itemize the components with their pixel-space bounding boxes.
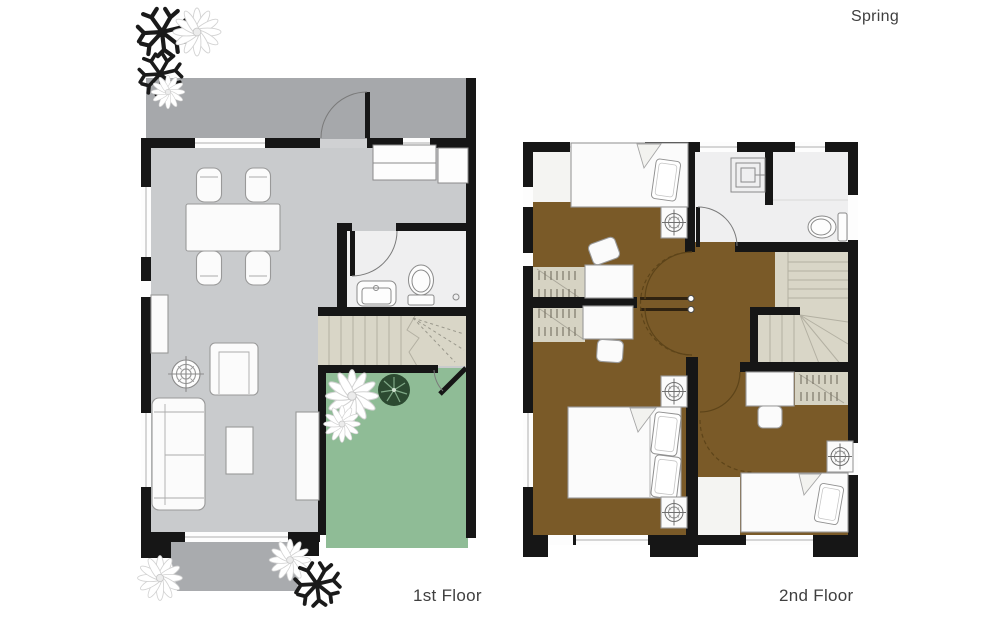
pillow	[651, 159, 681, 202]
bedroom2-rug	[698, 477, 740, 535]
sink	[357, 281, 396, 306]
tv-console	[296, 412, 319, 500]
nightstand	[661, 376, 687, 407]
sofa	[152, 398, 205, 510]
chair	[758, 406, 782, 428]
dining-chair	[197, 251, 222, 285]
stairs-upper	[775, 252, 848, 315]
desk	[746, 372, 794, 406]
bedroom1-corner	[533, 152, 571, 202]
bathroom-door-leaf	[350, 231, 355, 276]
pillow	[651, 412, 682, 457]
bush-icon	[378, 374, 410, 406]
second-floor	[523, 142, 858, 557]
cabinet	[151, 295, 168, 353]
dining-table	[186, 204, 280, 251]
floor-plan-page: Spring 1st Floor 2nd Floor	[0, 0, 1000, 624]
closet-master	[533, 305, 585, 342]
first-floor-label: 1st Floor	[413, 586, 482, 606]
armchair	[210, 343, 258, 395]
floor-plan-drawing	[0, 0, 1000, 624]
tree-icon	[295, 563, 340, 606]
entry-threshold	[320, 139, 367, 148]
nightstand	[661, 207, 687, 238]
second-floor-label: 2nd Floor	[779, 586, 854, 606]
nightstand	[661, 497, 687, 528]
entry-porch-floor	[146, 78, 476, 140]
nightstand	[827, 441, 853, 472]
flower-icon	[173, 8, 221, 56]
first-floor	[138, 8, 476, 606]
chair	[596, 339, 623, 363]
plan-title: Spring	[851, 8, 899, 26]
coffee-table	[226, 427, 253, 474]
dining-chair	[246, 168, 271, 202]
dining-chair	[246, 251, 271, 285]
toilet	[408, 265, 434, 305]
desk	[583, 306, 633, 339]
closet-bedroom2	[795, 372, 848, 405]
kitchen-counter	[373, 145, 468, 183]
desk	[585, 265, 633, 298]
pillow	[651, 455, 682, 500]
dining-chair	[197, 168, 222, 202]
